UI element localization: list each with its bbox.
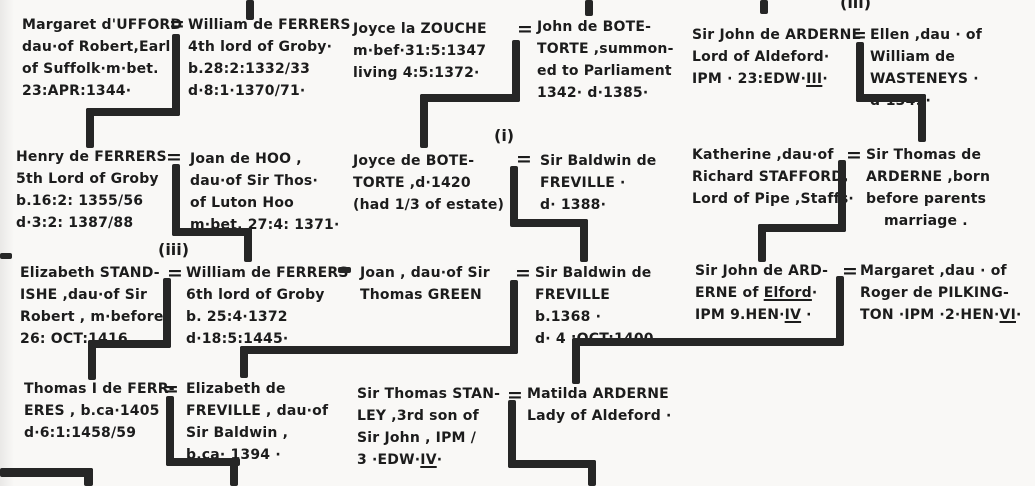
person-line: Lord of Aldeford· (692, 46, 861, 68)
person-line: ed to Parliament (537, 60, 674, 82)
connector-line (420, 94, 428, 148)
marriage-equals: = (517, 18, 533, 40)
person-line: William de (870, 46, 982, 68)
person-line: Thomas GREEN (360, 284, 490, 306)
person-line: TORTE ,summon- (537, 38, 674, 60)
person-line: 23:APR:1344· (22, 80, 182, 102)
person-margaret-ufford: Margaret d'UFFORD dau·of Robert,Earl of … (22, 14, 182, 102)
person-line: d· 1388· (540, 194, 657, 216)
person-line: before parents (866, 188, 990, 210)
connector-line (86, 108, 180, 116)
connector-line (856, 94, 926, 102)
person-line: TORTE ,d·1420 (353, 172, 504, 194)
connector-line (918, 94, 926, 142)
person-william-ferrers-6th: William de FERRERS 6th lord of Groby b. … (186, 262, 349, 350)
person-william-ferrers-4th: William de FERRERS 4th lord of Groby· b.… (188, 14, 351, 102)
person-line: Sir Baldwin , (186, 422, 328, 444)
connector-line (572, 338, 844, 346)
connector-line (585, 0, 593, 16)
connector-line (510, 280, 518, 354)
person-thomas-stanley: Sir Thomas STAN- LEY ,3rd son of Sir Joh… (357, 383, 500, 471)
connector-line (172, 34, 180, 116)
person-line: b. 25:4·1372 (186, 306, 349, 328)
person-line: b.1368 · (535, 306, 654, 328)
person-joyce-de-botetorte: Joyce de BOTE- TORTE ,d·1420 (had 1/3 of… (353, 150, 504, 216)
person-line: John de BOTE- (537, 16, 674, 38)
person-line: Matilda ARDERNE (527, 383, 672, 405)
person-line: Sir Baldwin de (535, 262, 654, 284)
person-line: of Luton Hoo (190, 192, 340, 214)
connector-line (88, 340, 171, 348)
connector-line (588, 460, 596, 486)
person-line: ERES , b.ca·1405 (24, 400, 175, 422)
connector-line (166, 458, 240, 466)
person-john-arderne-elford: Sir John de ARD- ERNE of Elford· IPM 9.H… (695, 260, 828, 326)
person-line: Sir Thomas de (866, 144, 990, 166)
person-katherine-stafford: Katherine ,dau·of Richard STAFFORD, Lord… (692, 144, 854, 210)
person-line: Thomas I de FERR- (24, 378, 175, 400)
person-elizabeth-standishe: Elizabeth STAND- ISHE ,dau·of Sir Robert… (20, 262, 164, 350)
person-line: IPM 9.HEN·IV · (695, 304, 828, 326)
person-line: ARDERNE ,born (866, 166, 990, 188)
person-line: 1342· d·1385· (537, 82, 674, 104)
person-john-arderne-aldeford: Sir John de ARDERNE Lord of Aldeford· IP… (692, 24, 861, 90)
person-line: Joyce de BOTE- (353, 150, 504, 172)
person-thomas-de-arderne: Sir Thomas de ARDERNE ,born before paren… (866, 144, 990, 232)
connector-line (572, 338, 580, 384)
connector-line (758, 224, 846, 232)
person-joyce-la-zouche: Joyce la ZOUCHE m·bef·31:5:1347 living 4… (353, 18, 487, 84)
person-elizabeth-freville: Elizabeth de FREVILLE , dau·of Sir Baldw… (186, 378, 328, 466)
person-line: ISHE ,dau·of Sir (20, 284, 164, 306)
person-line: Margaret d'UFFORD (22, 14, 182, 36)
marriage-equals: = (169, 13, 185, 35)
person-line: Joan , dau·of Sir (360, 262, 490, 284)
connector-line (510, 166, 518, 226)
person-line: of Suffolk·m·bet. (22, 58, 182, 80)
person-line: IPM · 23:EDW·III· (692, 68, 861, 90)
person-line: dau·of Sir Thos· (190, 170, 340, 192)
person-line: living 4:5:1372· (353, 62, 487, 84)
person-line: Joan de HOO , (190, 148, 340, 170)
person-joan-green: Joan , dau·of Sir Thomas GREEN (360, 262, 490, 306)
marriage-number-annotation: (iii) (840, 0, 871, 12)
person-line: 5th Lord of Groby (16, 168, 167, 190)
connector-line (838, 160, 846, 232)
person-john-de-botetorte: John de BOTE- TORTE ,summon- ed to Parli… (537, 16, 674, 104)
person-line: marriage . (866, 210, 990, 232)
connector-line (244, 228, 252, 262)
person-line: d·8:1·1370/71· (188, 80, 351, 102)
person-line: Ellen ,dau · of (870, 24, 982, 46)
person-line: Joyce la ZOUCHE (353, 18, 487, 40)
person-line: LEY ,3rd son of (357, 405, 500, 427)
marriage-number-annotation: (i) (494, 126, 514, 145)
person-joan-de-hoo: Joan de HOO , dau·of Sir Thos· of Luton … (190, 148, 340, 236)
connector-line (166, 396, 174, 466)
person-line: Lord of Pipe ,Staffs· (692, 188, 854, 210)
connector-line (580, 219, 588, 262)
person-line: Roger de PILKING- (860, 282, 1022, 304)
connector-line (508, 460, 596, 468)
person-line: TON ·IPM ·2·HEN·VI· (860, 304, 1022, 326)
person-matilda-arderne: Matilda ARDERNE Lady of Aldeford · (527, 383, 672, 427)
person-line: d·3:2: 1387/88 (16, 212, 167, 234)
person-line: 3 ·EDW·IV· (357, 449, 500, 471)
person-line: FREVILLE · (540, 172, 657, 194)
person-line: ERNE of Elford· (695, 282, 828, 304)
connector-line (88, 340, 96, 380)
person-margaret-pilkington: Margaret ,dau · of Roger de PILKING- TON… (860, 260, 1022, 326)
marriage-equals: = (842, 260, 858, 282)
person-line: m·bef·31:5:1347 (353, 40, 487, 62)
person-line: WASTENEYS · (870, 68, 982, 90)
connector-line (512, 40, 520, 102)
connector-line (760, 0, 768, 14)
person-line: William de FERRERS (188, 14, 351, 36)
person-line: Sir Baldwin de (540, 150, 657, 172)
person-line: Sir Thomas STAN- (357, 383, 500, 405)
person-thomas-i-de-ferreres: Thomas I de FERR- ERES , b.ca·1405 d·6:1… (24, 378, 175, 444)
person-baldwin-freville-i: Sir Baldwin de FREVILLE · d· 1388· (540, 150, 657, 216)
connector-line (420, 94, 520, 102)
connector-line (510, 219, 588, 227)
person-line: Elizabeth STAND- (20, 262, 164, 284)
connector-line (836, 276, 844, 346)
marriage-number-annotation: (iii) (158, 240, 189, 259)
person-line: Sir John de ARD- (695, 260, 828, 282)
person-line: d·6:1:1458/59 (24, 422, 175, 444)
marriage-equals: = (516, 148, 532, 170)
connector-line (338, 267, 351, 273)
person-line: Robert , m·before (20, 306, 164, 328)
person-line: Elizabeth de (186, 378, 328, 400)
person-line: 6th lord of Groby (186, 284, 349, 306)
connector-line (0, 468, 93, 477)
person-line: Sir John , IPM / (357, 427, 500, 449)
connector-line (230, 458, 238, 486)
connector-line (240, 346, 248, 378)
connector-line (172, 228, 252, 236)
connector-line (856, 42, 864, 102)
person-line: 4th lord of Groby· (188, 36, 351, 58)
person-line: Katherine ,dau·of (692, 144, 854, 166)
person-line: b.28:2:1332/33 (188, 58, 351, 80)
person-line: Lady of Aldeford · (527, 405, 672, 427)
person-line: (had 1/3 of estate) (353, 194, 504, 216)
connector-line (758, 224, 766, 262)
person-line: Sir John de ARDERNE (692, 24, 861, 46)
connector-line (508, 400, 516, 468)
connector-line (240, 346, 518, 354)
connector-line (163, 278, 171, 348)
person-line: Henry de FERRERS (16, 146, 167, 168)
connector-line (0, 253, 12, 259)
connector-line (86, 108, 94, 148)
person-line: Margaret ,dau · of (860, 260, 1022, 282)
connector-line (84, 468, 93, 486)
person-baldwin-freville-ii: Sir Baldwin de FREVILLE b.1368 · d· 4 :O… (535, 262, 654, 350)
person-henry-ferrers-5th: Henry de FERRERS 5th Lord of Groby b.16:… (16, 146, 167, 234)
person-line: b.16:2: 1355/56 (16, 190, 167, 212)
connector-line (172, 164, 180, 236)
person-line: dau·of Robert,Earl (22, 36, 182, 58)
person-line: Richard STAFFORD, (692, 166, 854, 188)
person-line: William de FERRERS (186, 262, 349, 284)
genealogy-chart: Margaret d'UFFORD dau·of Robert,Earl of … (0, 0, 1035, 486)
person-line: FREVILLE , dau·of (186, 400, 328, 422)
person-line: FREVILLE (535, 284, 654, 306)
marriage-equals: = (846, 144, 862, 166)
